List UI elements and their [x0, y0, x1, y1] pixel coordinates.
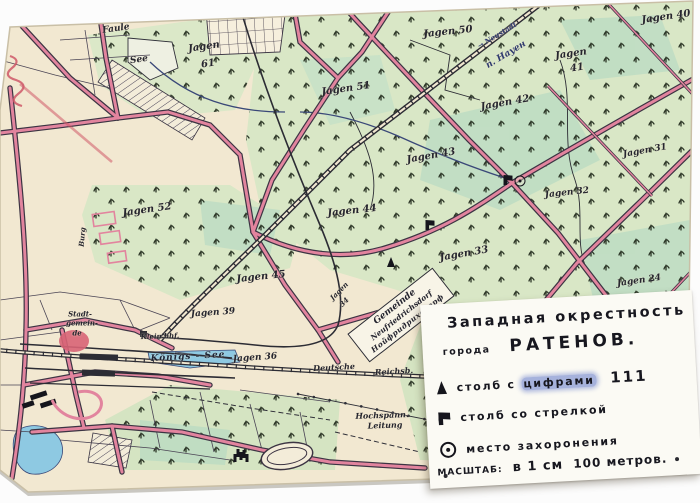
scale-cm: в 1 см	[512, 457, 563, 475]
scale-meters: 100 метров.	[573, 452, 668, 471]
burial-place-circle-icon	[440, 441, 457, 458]
legend-city-prefix: города	[442, 344, 490, 358]
legend-title: Западная окрестность	[447, 302, 686, 331]
legend-item-post-arrow: столб со стрелкой	[438, 403, 608, 425]
post-with-arrow-flag-icon	[438, 412, 451, 426]
legend-item-label: столб с цифрами 111	[456, 367, 648, 396]
pin-hole	[675, 457, 679, 461]
smudged-word: цифрами	[521, 373, 597, 390]
post-with-numbers-triangle-icon	[436, 380, 447, 394]
legend-city-line: города РАТЕНОВ.	[442, 329, 639, 360]
legend-post-number: 111	[610, 367, 648, 387]
legend-card: Западная окрестность города РАТЕНОВ. сто…	[420, 290, 700, 489]
legend-item-label: место захоронения	[466, 434, 619, 456]
red-building-blob	[59, 330, 89, 352]
map-photo: FauleSeeJagen61Jagen 50→ Neustadtп. Науе…	[0, 0, 700, 503]
legend-item-burial: место захоронения	[440, 432, 619, 458]
legend-city-name: РАТЕНОВ.	[509, 329, 639, 356]
legend-item-label: столб со стрелкой	[460, 403, 608, 424]
legend-item-post-numbers: столб с цифрами 111	[436, 367, 648, 397]
kleinbahnhof-square	[140, 331, 147, 337]
